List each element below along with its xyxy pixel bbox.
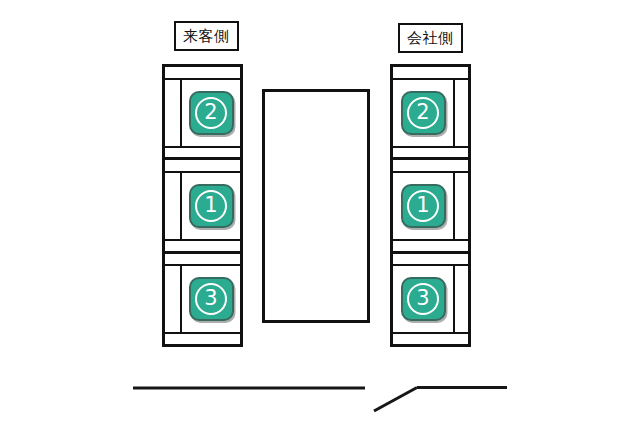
seat-area: 1 — [393, 173, 453, 239]
seat-badge: 2 — [189, 91, 234, 135]
visitor-chair-2: 2 — [165, 67, 240, 157]
door-leaf-icon — [374, 388, 417, 412]
seat-badge: 2 — [401, 91, 446, 135]
chair-edge-band — [165, 160, 240, 173]
chair-edge-band — [393, 254, 468, 267]
company-chair-2: 2 — [393, 67, 468, 157]
seating-diagram: 来客側 会社側 2 1 — [0, 0, 640, 427]
chair-armrest — [165, 266, 182, 332]
seat-number: 2 — [195, 97, 227, 129]
visitor-sofa: 2 1 — [162, 64, 243, 347]
chair-edge-band — [165, 254, 240, 267]
visitor-chair-3: 3 — [165, 251, 240, 344]
meeting-table — [262, 89, 370, 323]
chair-edge-band — [165, 67, 240, 80]
seat-area: 2 — [393, 80, 453, 146]
chair-seat: 1 — [393, 173, 468, 239]
visitor-chair-1: 1 — [165, 157, 240, 250]
company-chair-3: 3 — [393, 251, 468, 344]
chair-edge-band — [165, 146, 240, 158]
chair-seat: 2 — [393, 80, 468, 146]
chair-armrest — [165, 173, 182, 239]
seat-badge: 3 — [189, 277, 234, 321]
company-side-label: 会社側 — [398, 23, 463, 53]
seat-number: 3 — [195, 283, 227, 315]
chair-armrest — [165, 80, 182, 146]
chair-edge-band — [393, 332, 468, 344]
chair-seat: 1 — [165, 173, 240, 239]
seat-area: 1 — [182, 173, 240, 239]
seat-area: 2 — [182, 80, 240, 146]
seat-badge: 1 — [189, 184, 234, 228]
chair-edge-band — [393, 239, 468, 251]
visitor-side-label: 来客側 — [174, 21, 239, 51]
chair-edge-band — [165, 332, 240, 344]
chair-seat: 2 — [165, 80, 240, 146]
seat-number: 1 — [195, 190, 227, 222]
chair-edge-band — [393, 160, 468, 173]
seat-area: 3 — [393, 266, 453, 332]
seat-number: 3 — [407, 283, 439, 315]
seat-badge: 1 — [401, 184, 446, 228]
seat-number: 2 — [407, 97, 439, 129]
chair-seat: 3 — [165, 266, 240, 332]
chair-edge-band — [393, 146, 468, 158]
chair-armrest — [453, 173, 468, 239]
entrance-wall — [130, 379, 510, 417]
company-sofa: 2 1 — [390, 64, 471, 347]
seat-number: 1 — [407, 190, 439, 222]
seat-area: 3 — [182, 266, 240, 332]
chair-armrest — [453, 80, 468, 146]
chair-armrest — [453, 266, 468, 332]
chair-edge-band — [393, 67, 468, 80]
seat-badge: 3 — [401, 277, 446, 321]
company-chair-1: 1 — [393, 157, 468, 250]
chair-edge-band — [165, 239, 240, 251]
chair-seat: 3 — [393, 266, 468, 332]
